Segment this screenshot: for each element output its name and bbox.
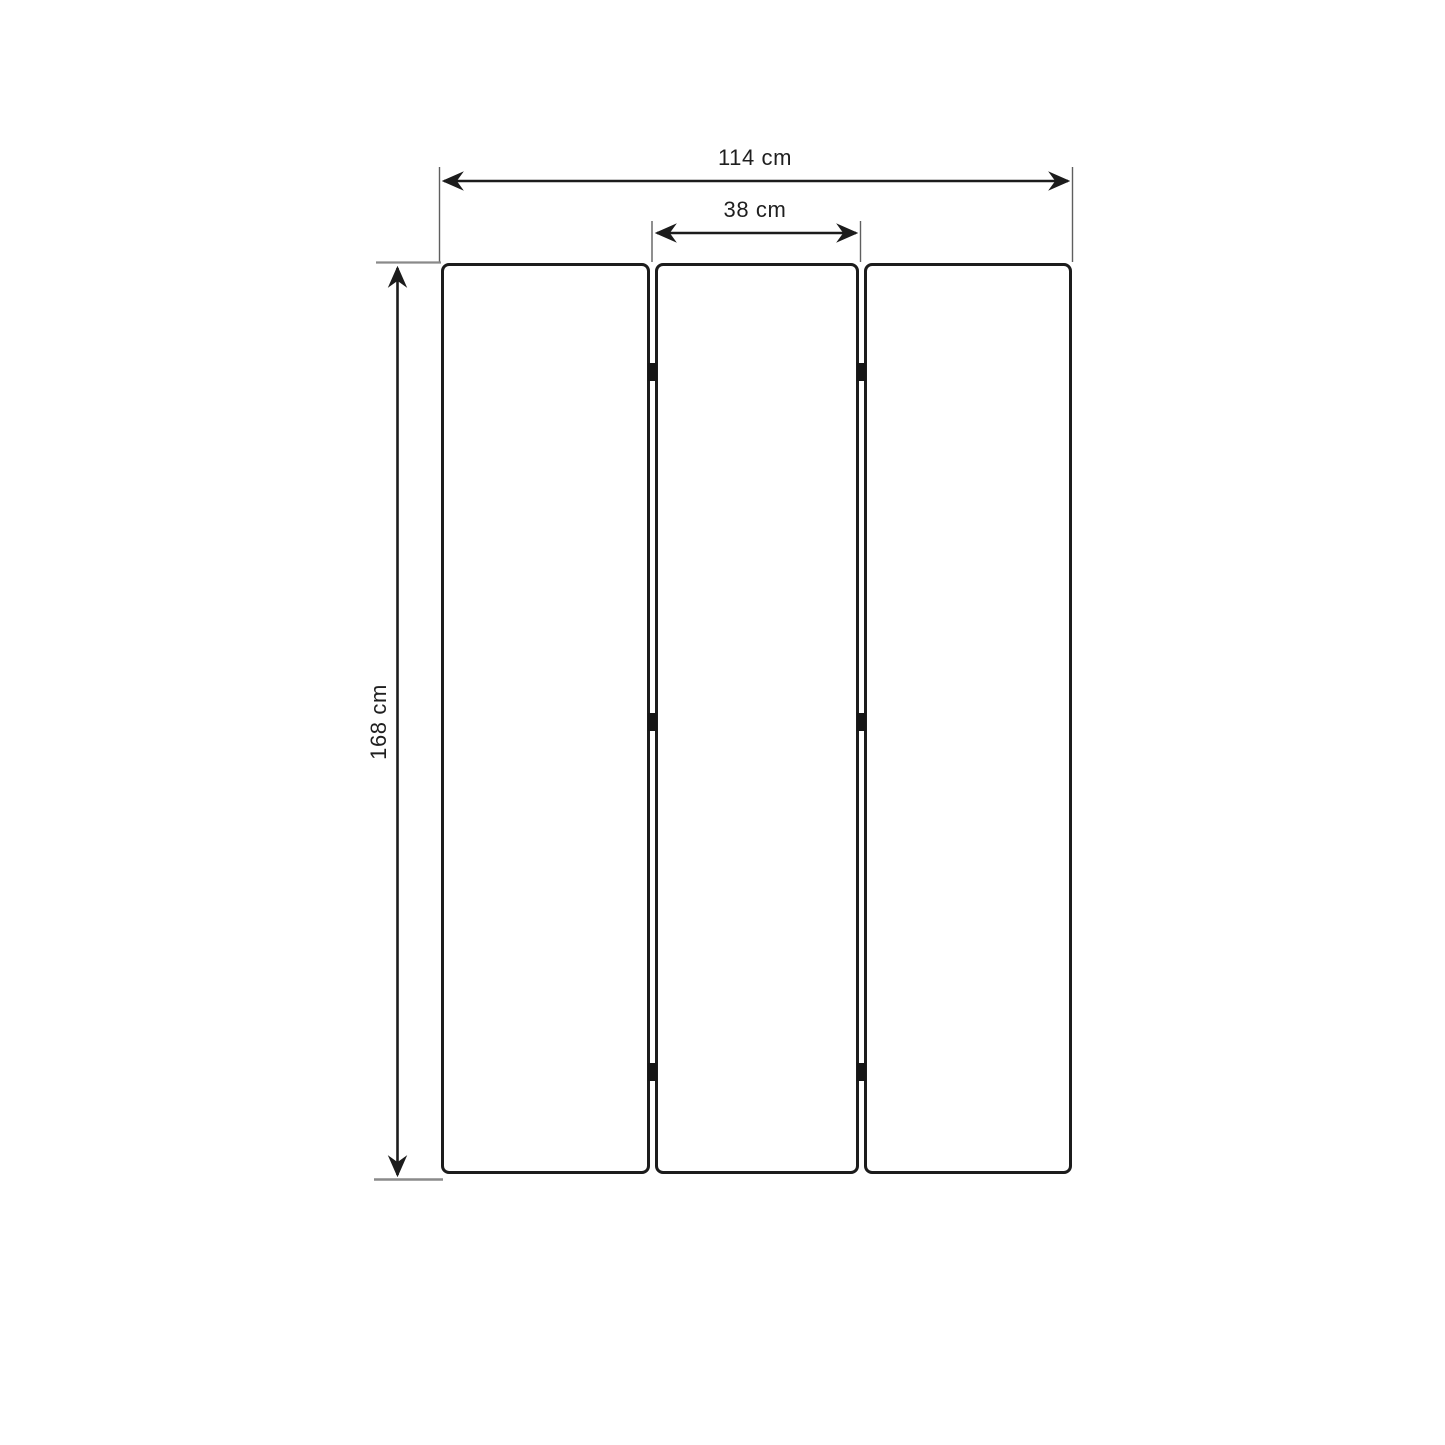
dimension-drawing-canvas: 114 cm 38 cm 168 cm bbox=[0, 0, 1445, 1445]
height-label: 168 cm bbox=[367, 684, 391, 760]
hinge-left-top bbox=[648, 363, 657, 381]
hinge-left-bottom bbox=[648, 1063, 657, 1081]
panel-right bbox=[864, 263, 1072, 1174]
hinge-left-middle bbox=[648, 713, 657, 731]
total-width-label: 114 cm bbox=[718, 146, 792, 170]
hinge-right-top bbox=[857, 363, 866, 381]
panel-left bbox=[441, 263, 650, 1174]
panel-center bbox=[655, 263, 859, 1174]
hinge-right-middle bbox=[857, 713, 866, 731]
hinge-right-bottom bbox=[857, 1063, 866, 1081]
panel-width-label: 38 cm bbox=[724, 198, 787, 222]
